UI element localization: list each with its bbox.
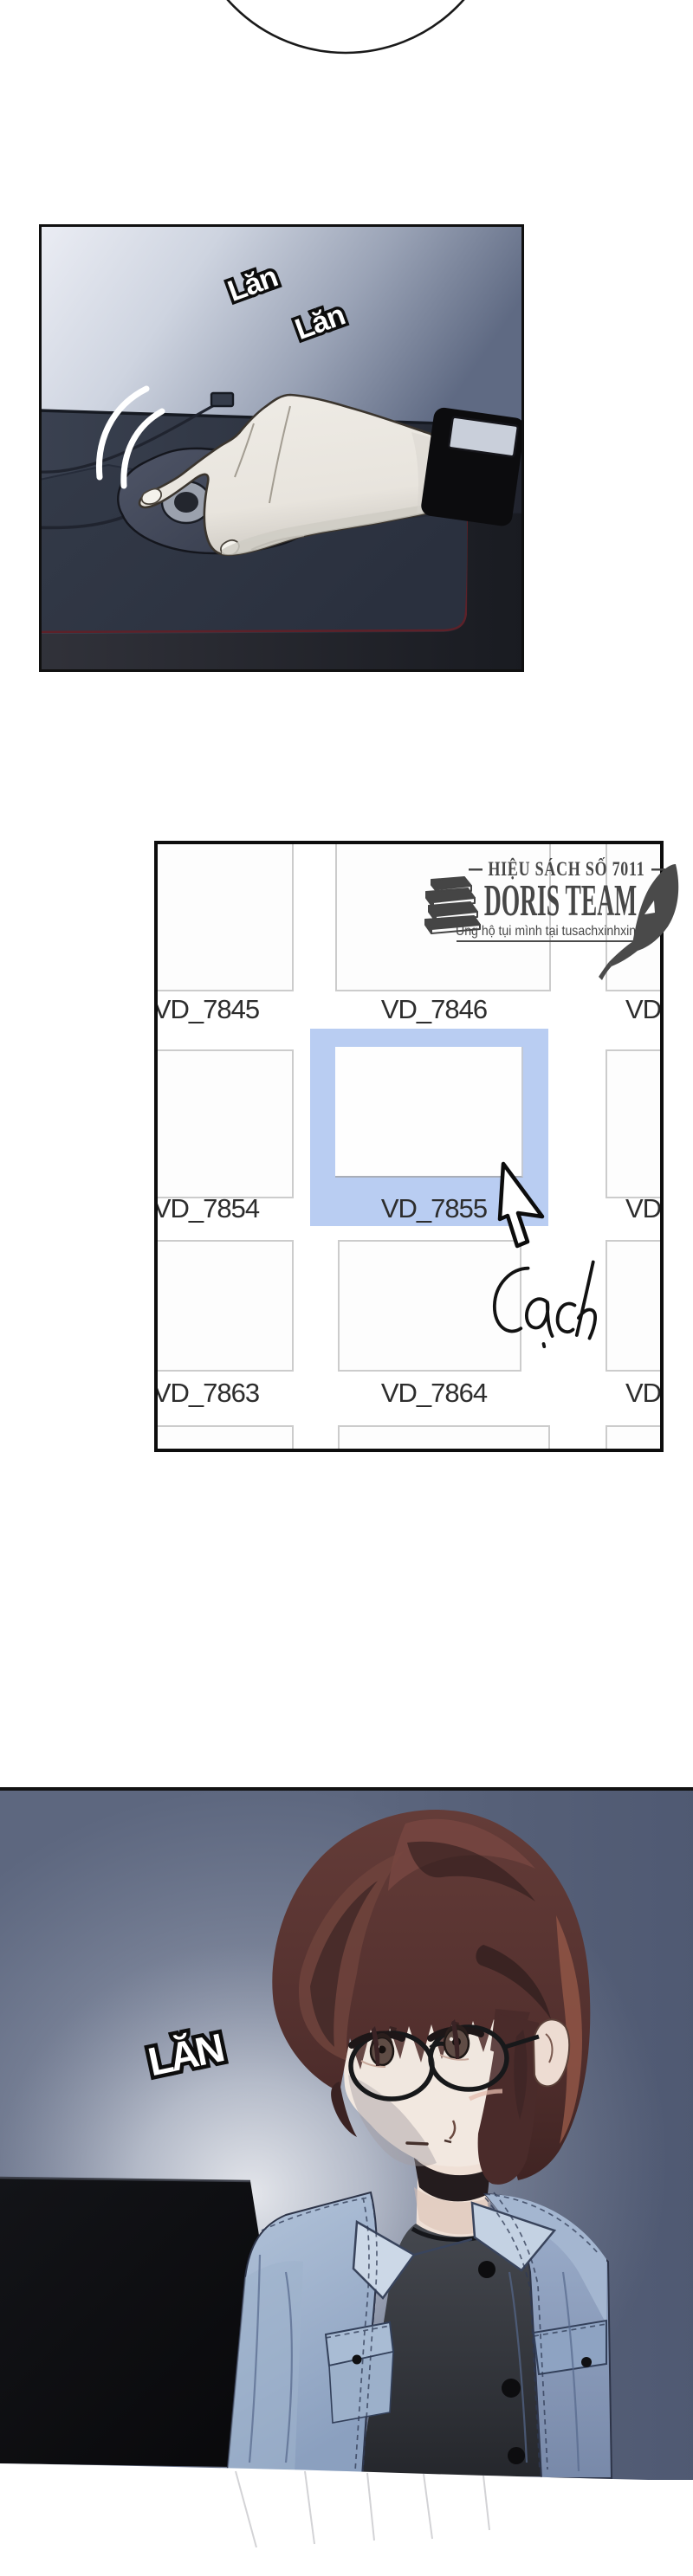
svg-text:Ủng hộ tụi mình tại tusachxinh: Ủng hộ tụi mình tại tusachxinhxinh — [456, 922, 643, 939]
svg-text:DORIS TEAM: DORIS TEAM — [484, 876, 637, 926]
